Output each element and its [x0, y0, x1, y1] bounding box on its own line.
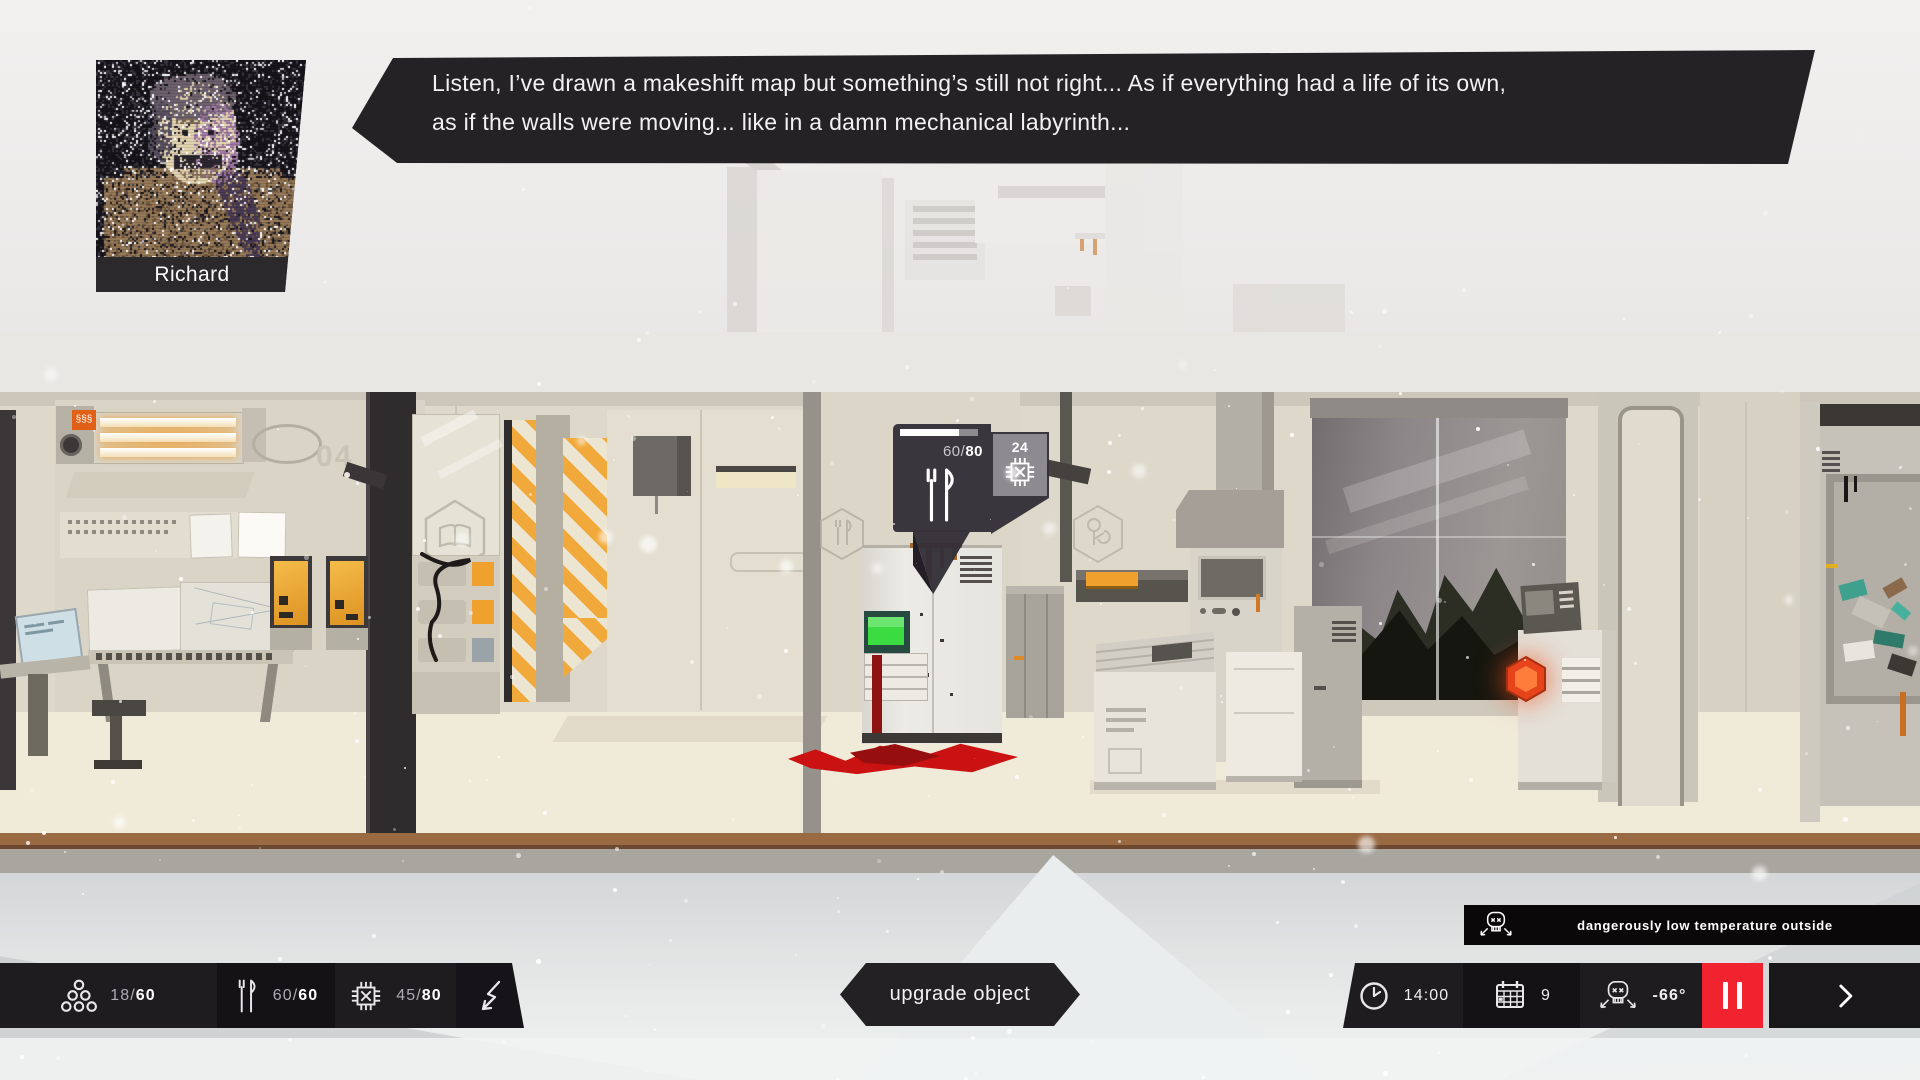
durability-progress-fill [900, 429, 959, 436]
chip-icon [349, 979, 383, 1013]
durability-value: 60/80 [893, 443, 983, 460]
upgrade-object-button[interactable]: upgrade object [840, 963, 1080, 1026]
wall-documents-panel [60, 512, 260, 558]
vending-panel[interactable] [270, 556, 312, 650]
chevron-right-icon [1830, 981, 1860, 1011]
yellow-tray [1086, 572, 1138, 589]
hazard-stripe-door[interactable] [512, 420, 536, 702]
time-display[interactable]: 14:00 [1343, 963, 1463, 1028]
heat-badge: §§§ [72, 410, 96, 430]
fork-icon [234, 978, 260, 1014]
heater-bar [100, 418, 236, 427]
wall-monitor-unit[interactable] [633, 436, 691, 496]
heater-shadow [66, 472, 254, 498]
upgrade-cost-box[interactable]: 24 [993, 434, 1047, 496]
locker-tall[interactable] [1294, 606, 1362, 788]
clock-icon [1357, 979, 1391, 1013]
hazard-stripe-wall [563, 438, 607, 620]
game-screen: §§§ 04 [0, 0, 1920, 1080]
skull-icon [1476, 910, 1516, 940]
resource-bar: 18/60 60/60 45/80 [0, 963, 524, 1028]
kiosk-console [1520, 582, 1581, 634]
dialog-text: Listen, I’ve drawn a makeshift map but s… [432, 64, 1772, 142]
storage-room[interactable] [1800, 392, 1920, 833]
printer-machine[interactable] [1094, 638, 1218, 790]
stat-colonists[interactable]: 18/60 [0, 963, 217, 1028]
locker-small[interactable] [1006, 586, 1064, 718]
wall-pipe-outline [730, 552, 810, 572]
checkpoint-kiosk[interactable] [1516, 580, 1606, 790]
wall-pillar [366, 392, 416, 833]
clock-bar: 14:00 9 -66° [1343, 963, 1920, 1028]
stat-energy[interactable] [456, 963, 524, 1028]
warning-light-hex [1504, 654, 1548, 709]
floor-shadow [552, 716, 827, 742]
skull-temperature-icon [1596, 979, 1640, 1013]
heater-bar [100, 433, 236, 442]
vending-panel[interactable] [326, 556, 368, 650]
storage-clutter [1834, 542, 1920, 696]
vent-chimney [1216, 392, 1274, 494]
floor-edge-brown [0, 833, 1920, 845]
upgrade-cost-value: 24 [1012, 439, 1029, 455]
bookcase-cabinet[interactable] [412, 414, 500, 714]
dialog-bubble[interactable]: Listen, I’ve drawn a makeshift map but s… [350, 48, 1815, 166]
object-tooltip: 60/80 24 [893, 424, 1053, 600]
speed-forward-button[interactable] [1769, 963, 1920, 1028]
blood-streak [872, 655, 882, 741]
warning-banner: dangerously low temperature outside [1464, 905, 1920, 945]
heater-fan-icon [60, 434, 82, 456]
terminal-green-screen [868, 617, 904, 645]
lightning-icon [473, 979, 507, 1013]
plant-emblem-icon [1070, 503, 1126, 570]
heater-bar [100, 448, 236, 457]
day-display[interactable]: 9 [1463, 963, 1580, 1028]
calendar-icon [1492, 978, 1528, 1014]
camera-lens [344, 472, 350, 478]
temperature-display[interactable]: -66° [1580, 963, 1702, 1028]
wall-shelf [716, 466, 796, 488]
speaker-portrait: Richard [96, 60, 306, 292]
food-icon [919, 466, 961, 529]
wall-heater[interactable]: §§§ [56, 406, 266, 468]
durability-progress [900, 429, 978, 436]
warning-text: dangerously low temperature outside [1516, 918, 1920, 933]
laptop-desk[interactable] [0, 612, 100, 762]
foundation-band [0, 849, 1920, 873]
cable-coil [252, 424, 322, 464]
stool [92, 700, 152, 774]
stat-food[interactable]: 60/60 [217, 963, 335, 1028]
hanging-cable [412, 546, 500, 666]
speaker-name: Richard [154, 263, 247, 287]
pause-button[interactable] [1702, 963, 1763, 1028]
door-edge-dark [504, 420, 512, 702]
base-roof-band [0, 332, 1920, 392]
stat-materials[interactable]: 45/80 [335, 963, 456, 1028]
counter-tray [1076, 570, 1188, 602]
pause-icon [1723, 982, 1728, 1009]
portrait-image [96, 60, 306, 257]
people-icon [61, 979, 97, 1013]
speaker-nameplate: Richard [96, 257, 306, 292]
chip-icon [1003, 455, 1037, 489]
food-emblem-icon [818, 506, 866, 567]
white-cabinet[interactable] [1226, 652, 1302, 782]
